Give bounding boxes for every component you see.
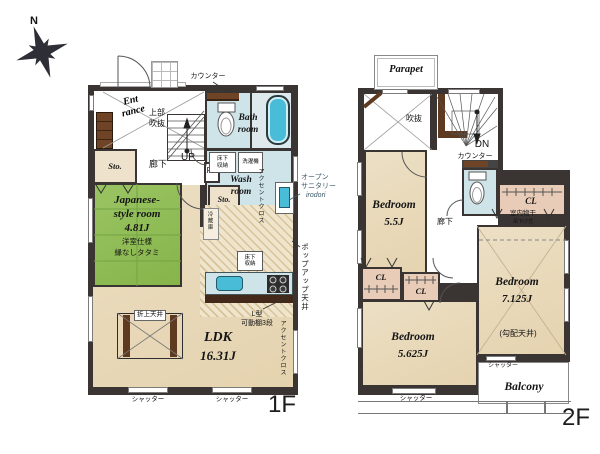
f2-parapet-label: Parapet bbox=[389, 65, 423, 76]
f2-bedroom3-size: 7.125J bbox=[502, 294, 532, 305]
f1-japanese-room-note2: 縁なしタタミ bbox=[115, 249, 160, 257]
f1-underfloor-storage-kitchen: 床下 収納 bbox=[237, 251, 263, 271]
compass-rose-icon bbox=[8, 18, 76, 86]
f2-shutter-b-label: シャッター bbox=[400, 396, 433, 403]
f2-balcony-label: Balcony bbox=[505, 382, 544, 394]
f1-bath-label-l2: room bbox=[238, 126, 259, 136]
f1-open-sanitary-l3: irodori bbox=[306, 192, 325, 199]
f2-closet-c-hangers bbox=[502, 188, 562, 196]
f1-entrance-void-l1: 上部 bbox=[149, 109, 165, 117]
f1-l-shelf-l2: 可動棚3段 bbox=[241, 320, 273, 327]
f1-accent-cloth-wash-label: アクセントクロス bbox=[257, 168, 263, 228]
f1-ldk-door-arc bbox=[177, 183, 203, 209]
f1-l-shelf-l1: L型 bbox=[252, 311, 263, 318]
floor-plan-canvas: N カウンター Ent rance 上部 吹抜 Bath room UP 廊下 … bbox=[0, 0, 600, 454]
f1-up-arrow bbox=[184, 119, 190, 153]
f2-closet-a-label: CL bbox=[376, 273, 387, 282]
f1-corridor-label: 廊下 bbox=[149, 160, 167, 169]
f1-up-label: UP bbox=[181, 153, 195, 163]
f1-wash-label-l2: room bbox=[231, 188, 252, 198]
f2-bedroom1-size: 5.5J bbox=[384, 217, 403, 228]
f1-washing-machine-label: 洗濯機 bbox=[242, 159, 259, 165]
f1-wash-label-l1: Wash bbox=[230, 176, 251, 186]
f1-storage-a-label: Sto. bbox=[108, 162, 121, 171]
f1-entry-door-arc bbox=[118, 56, 150, 88]
f2-bedroom2-size: 5.625J bbox=[398, 349, 428, 360]
f2-closet-b-hangers bbox=[405, 276, 436, 284]
f2-indoor-drying-l2: 吊下げ式 bbox=[513, 220, 533, 225]
f2-bedroom3-name: Bedroom bbox=[495, 277, 538, 289]
f1-storage-b-label: Sto. bbox=[218, 196, 231, 204]
f2-void-rail bbox=[364, 93, 381, 107]
f2-closet-b-label: CL bbox=[416, 287, 427, 296]
f1-underfloor-kitchen-l2: 収納 bbox=[244, 261, 255, 267]
f1-japanese-room-l1: Japanese- bbox=[114, 195, 160, 206]
compass-north-label: N bbox=[30, 16, 38, 27]
f1-open-sanitary-l2: サニタリー bbox=[301, 183, 336, 190]
f2-toilet-door-arc bbox=[447, 200, 463, 216]
f1-japanese-room-l2: style room bbox=[114, 209, 161, 220]
f1-ldk-name: LDK bbox=[204, 331, 232, 345]
f2-toilet-fixture bbox=[469, 172, 486, 204]
f1-popup-leader bbox=[292, 241, 300, 247]
f2-counter-label: カウンター bbox=[457, 153, 494, 160]
f2-closet-a-hangers bbox=[364, 285, 398, 293]
f1-counter-label: カウンター bbox=[191, 73, 226, 80]
f1-underfloor-storage-wash: 床下 収納 bbox=[209, 152, 236, 173]
f1-stove-burners bbox=[270, 277, 286, 292]
f1-toilet-fixture bbox=[218, 103, 235, 136]
f2-corridor-label: 廊下 bbox=[437, 218, 453, 226]
f2-shutter-a-label: シャッター bbox=[488, 363, 518, 369]
f1-popup-ceiling-label: ポップアップ天井 bbox=[301, 243, 309, 318]
f1-accent-cloth-ldk-label: アクセントクロス bbox=[279, 320, 285, 378]
f2-bedroom1-name: Bedroom bbox=[372, 200, 415, 212]
f2-indoor-drying-l1: 室内物干 bbox=[510, 211, 536, 218]
f1-bath-label-l1: Bath bbox=[238, 114, 257, 124]
f2-bedroom2-door-arc bbox=[440, 283, 460, 303]
f1-japanese-room-size: 4.81J bbox=[125, 223, 150, 234]
f2-closet-c-label: CL bbox=[525, 197, 537, 206]
f1-coffered-ceiling-label: 折上天井 bbox=[134, 310, 166, 321]
f2-bedroom2-name: Bedroom bbox=[391, 332, 434, 344]
f1-open-sanitary-l1: オープン bbox=[301, 174, 329, 181]
f1-ldk-size: 16.31J bbox=[200, 349, 236, 362]
f1-closet-door-marks bbox=[96, 185, 133, 193]
f1-japanese-room-note1: 洋室仕様 bbox=[122, 238, 152, 246]
f2-bedroom3-note: (勾配天井) bbox=[499, 330, 536, 338]
f1-sanitary-leader bbox=[289, 194, 300, 200]
f1-shutter-a-label: シャッター bbox=[132, 397, 165, 404]
f1-refrigerator-label: 冷蔵庫 bbox=[206, 211, 212, 239]
f2-floor-label: 2F bbox=[562, 406, 590, 430]
f1-underfloor-wash-l2: 収納 bbox=[217, 163, 228, 169]
f1-counter-leader bbox=[213, 82, 228, 92]
f2-bedroom1-door-arc bbox=[402, 152, 427, 177]
f1-shelf-leader bbox=[263, 297, 287, 309]
f2-dn-label: DN bbox=[475, 140, 489, 150]
f2-bedroom3-door-arc bbox=[433, 258, 453, 278]
f1-entrance-void-l2: 吹抜 bbox=[149, 120, 165, 128]
f1-shutter-b-label: シャッター bbox=[216, 397, 249, 404]
f1-floor-label: 1F bbox=[268, 393, 296, 417]
f2-void-label: 吹抜 bbox=[406, 115, 422, 123]
